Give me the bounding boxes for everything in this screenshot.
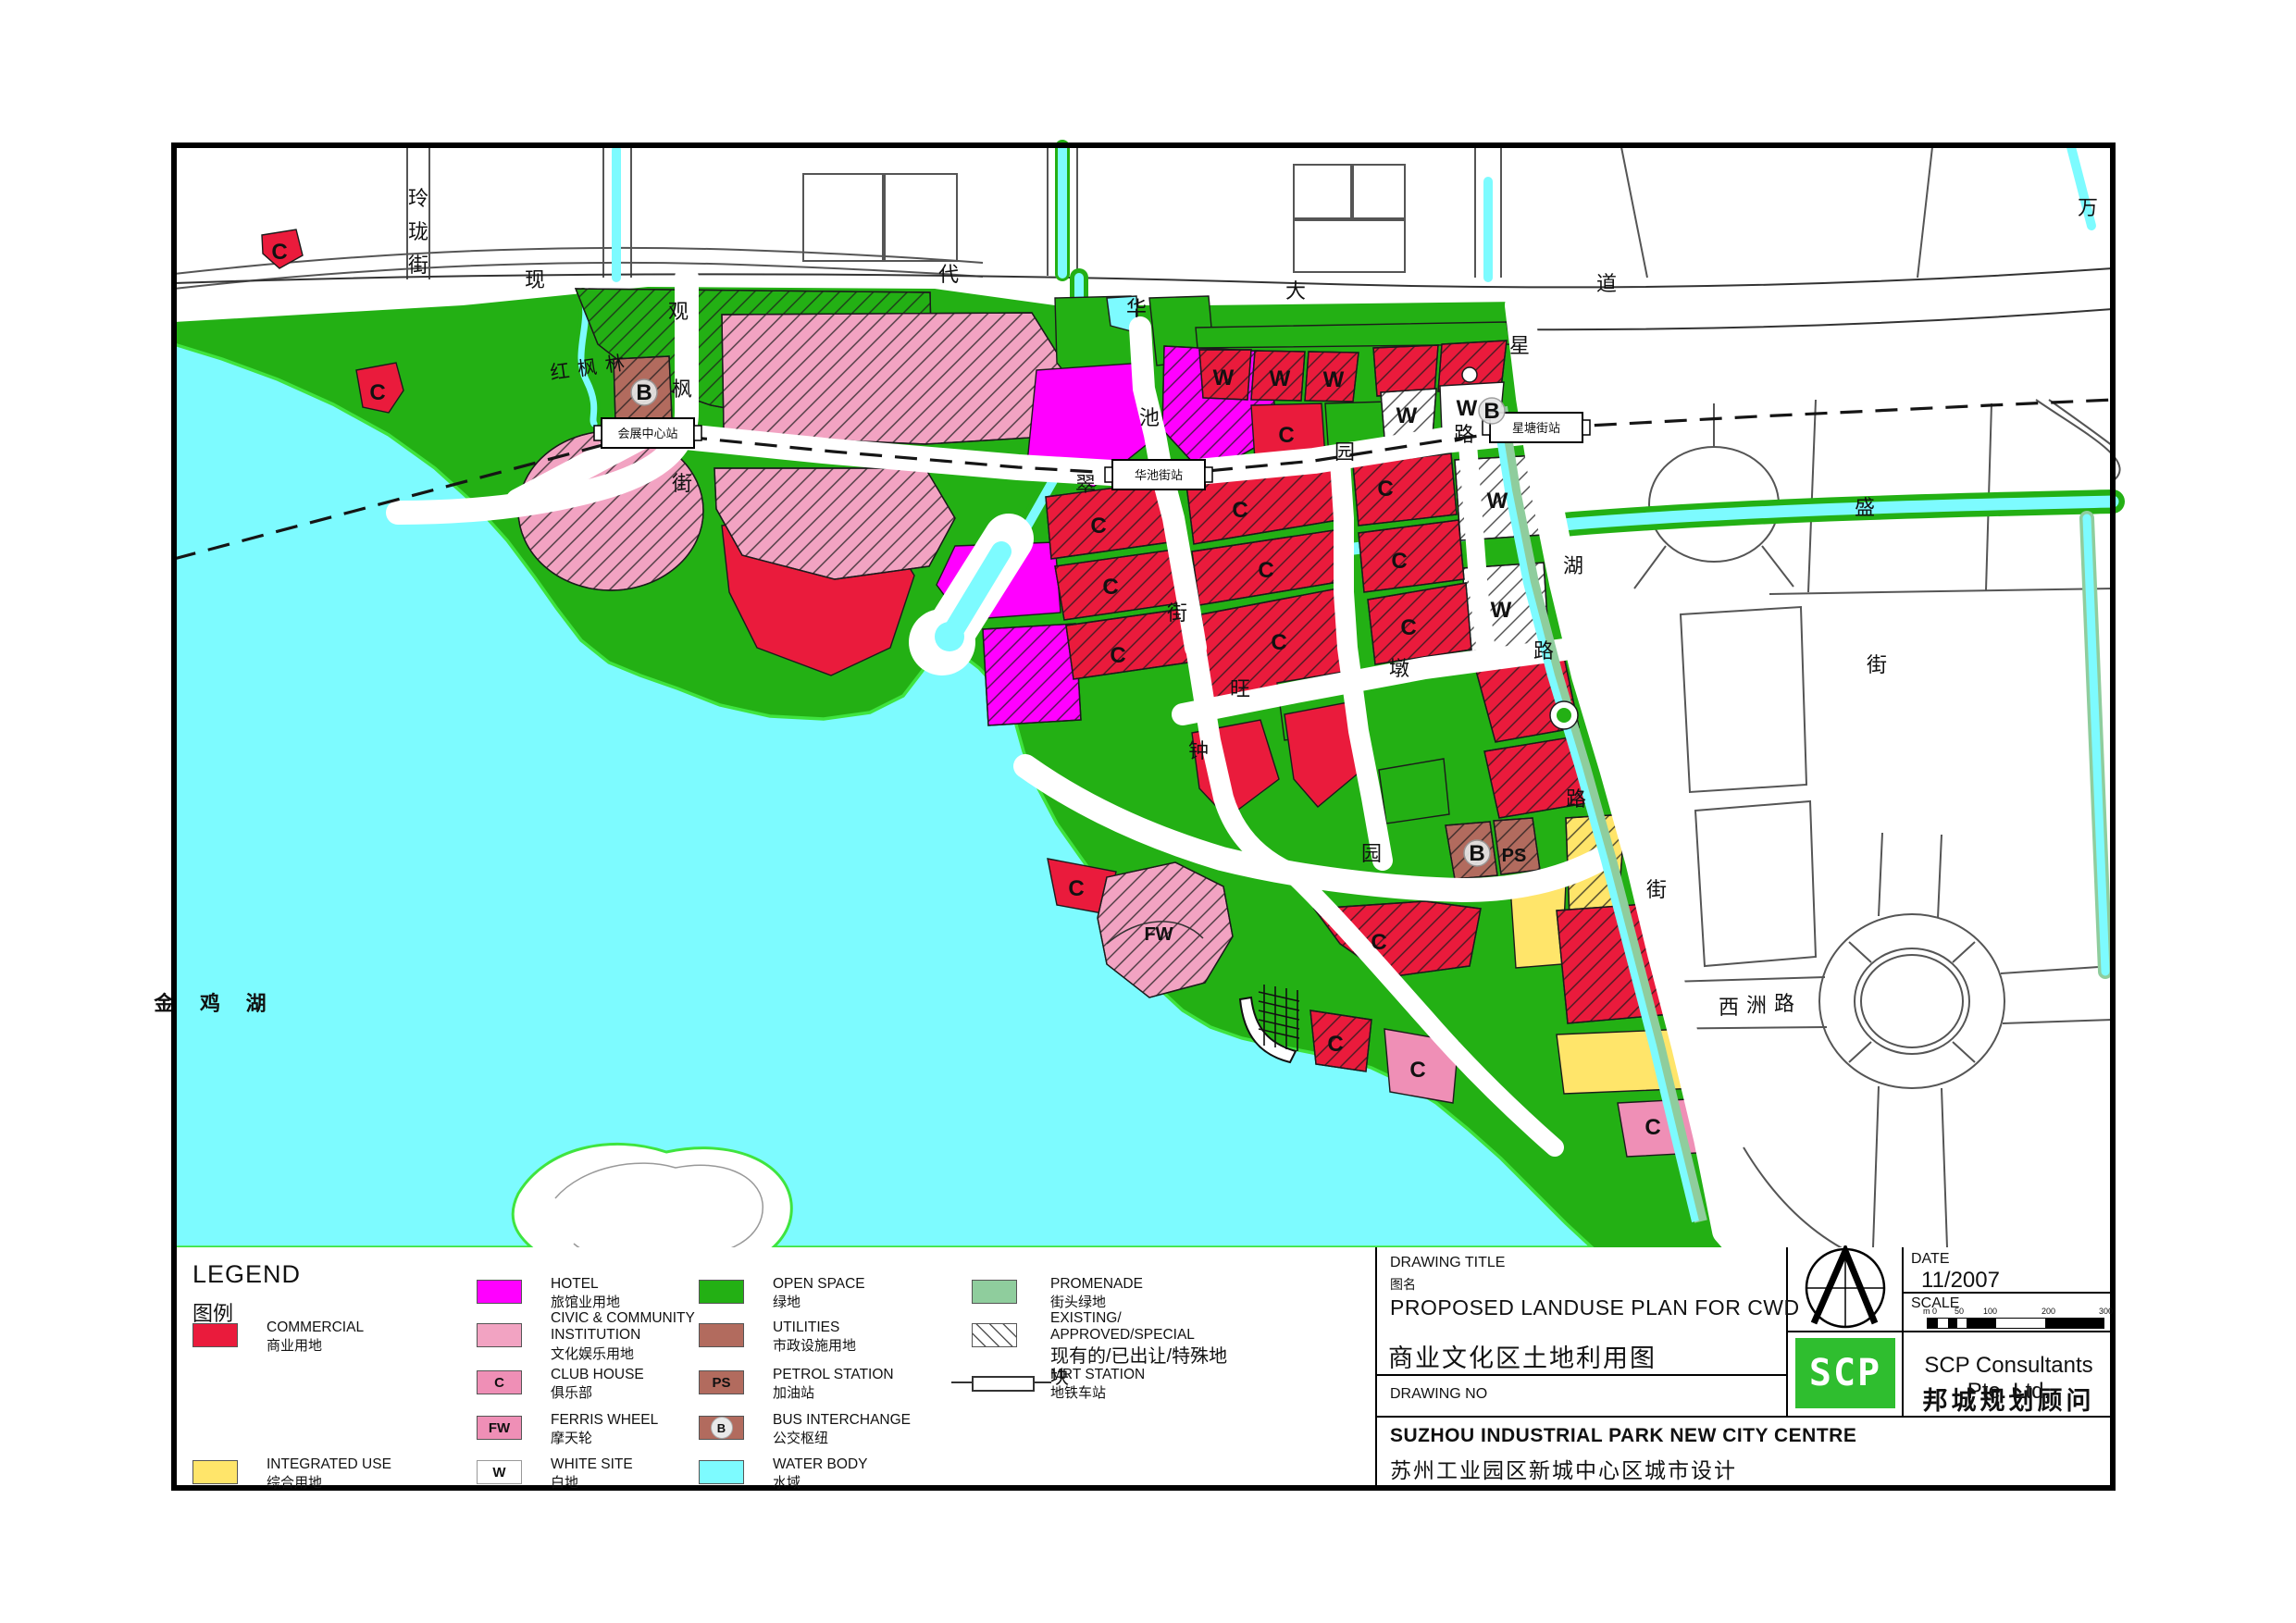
legend-label-petrol-station: PETROL STATION加油站 [773, 1367, 967, 1402]
street-name-label: 玲 [408, 188, 428, 211]
street-name-label: 现 [525, 269, 545, 292]
street-name-label: 街 [1867, 654, 1887, 677]
parcel-letter-c: C [1377, 477, 1393, 502]
legend-label-open-space: OPEN SPACE绿地 [773, 1276, 967, 1311]
legend-label-bus-interchange: BUS INTERCHANGE公交枢纽 [773, 1412, 967, 1447]
roundabout-dot [1557, 708, 1571, 723]
street-name-label: 街 [1167, 602, 1187, 626]
parcel-letter-c: C [1391, 549, 1407, 574]
scale-tick: 50 [1955, 1307, 1964, 1316]
street-name-label: 观 [668, 301, 689, 324]
drawing-no-label: DRAWING NO [1390, 1386, 1487, 1403]
parcel-letter-c: C [271, 240, 287, 265]
company-name-zh: 邦城规划顾问 [1905, 1381, 2113, 1417]
mrt-station-name: 华池街站 [1135, 469, 1183, 483]
parcel-letter-c: C [1232, 498, 1247, 523]
legend-swatch-water-body [699, 1460, 744, 1484]
legend-swatch-promenade [972, 1280, 1017, 1304]
parcel-letter-w: W [1396, 403, 1418, 428]
mrt-station-name: 星塘街站 [1512, 421, 1560, 436]
street-name-label: 墩 [1389, 658, 1409, 681]
parcel-letter-c: C [369, 380, 385, 405]
parcel-letter-c: C [1400, 615, 1416, 640]
parcel-letter-c: C [1409, 1058, 1425, 1083]
legend-swatch-integrated-use [192, 1460, 238, 1484]
scale-tick: 100 [1983, 1307, 1997, 1316]
scale-bar [1927, 1318, 2104, 1329]
parcel-hotel-hatched [983, 624, 1081, 725]
parcel-letter-w: W [1323, 367, 1345, 392]
street-name-label: 池 [1139, 407, 1160, 430]
street-name-label: 万 [2078, 197, 2098, 220]
legend-swatch-petrol-station: PS [699, 1370, 744, 1394]
street-name-label: 路 [1454, 424, 1474, 447]
parcel-letter-w: W [1213, 365, 1235, 390]
street-name-label: 街 [1646, 879, 1667, 902]
parcel-letter-b: B [636, 380, 652, 405]
scp-logo: SCP [1795, 1338, 1895, 1408]
parcel-open [1379, 759, 1449, 824]
street-name-label: 街 [672, 473, 692, 496]
legend-label-commercial: COMMERCIAL商业用地 [267, 1319, 461, 1355]
legend-swatch-civic-community-institution [477, 1323, 522, 1347]
legend-swatch-club-house: C [477, 1370, 522, 1394]
date-value: 11/2007 [1921, 1268, 2000, 1294]
street-name-label: 洲 [1746, 995, 1767, 1018]
street-name-label: 路 [1774, 993, 1794, 1016]
street-name-label: 园 [1361, 843, 1382, 866]
legend-swatch-utilities [699, 1323, 744, 1347]
street-name-label: 珑 [408, 221, 428, 244]
roundabout-dot [1462, 367, 1477, 382]
legend-swatch-white-site: W [477, 1460, 522, 1484]
parcel-letter-c: C [1371, 930, 1386, 955]
north-compass-icon [1792, 1245, 1901, 1331]
legend-label-promenade: PROMENADE街头绿地 [1050, 1276, 1245, 1311]
street-name-label: 华 [1126, 298, 1147, 321]
street-name-label: 湖 [1563, 555, 1583, 578]
parcel-letter-c: C [1327, 1032, 1343, 1057]
street-name-label: 路 [1533, 640, 1554, 663]
scale-tick: 300 [2099, 1307, 2113, 1316]
drawing-title: PROPOSED LANDUSE PLAN FOR CWD [1390, 1295, 1800, 1320]
street-name-label: 代 [938, 264, 959, 287]
parcel-letter-c: C [1102, 575, 1118, 600]
street-name-label: 路 [1566, 788, 1586, 811]
street-name-label: 盛 [1855, 497, 1875, 520]
parcel-letter-w: W [1487, 489, 1508, 514]
parcel-letter-w: W [1491, 598, 1512, 623]
scale-tick: m 0 [1923, 1307, 1937, 1316]
legend-swatch-hotel [477, 1280, 522, 1304]
parcel-letter-w: W [1457, 396, 1478, 421]
street-name-label: 旺 [1230, 678, 1250, 701]
date-label: DATE [1911, 1251, 1949, 1268]
street-name-label: 钟 [1188, 740, 1209, 763]
mrt-station-name: 会展中心站 [617, 427, 677, 441]
street-name-label: 西 [1719, 997, 1739, 1020]
parcel-letter-c: C [1278, 423, 1294, 448]
legend-swatch-bus-interchange: B [699, 1416, 744, 1440]
drawing-title-label-zh: 图名 [1390, 1275, 1416, 1294]
project-name-zh: 苏州工业园区新城中心区城市设计 [1390, 1453, 1737, 1484]
drawing-title-label: DRAWING TITLE [1390, 1255, 1505, 1271]
parcel-letter-w: W [1270, 366, 1291, 391]
street-name-label: 大 [1285, 280, 1306, 304]
parcel-letter-b: B [1483, 399, 1499, 424]
landuse-plan-sheet: 会展中心站华池街站星塘街站 CCCCCCCCCCCCCCCCCWWWWWWWFW… [0, 0, 2296, 1623]
legend-title: LEGEND [192, 1260, 301, 1289]
project-name-en: SUZHOU INDUSTRIAL PARK NEW CITY CENTRE [1390, 1425, 1856, 1447]
parcel-letter-c: C [1258, 558, 1273, 583]
legend-swatch-ferris-wheel: FW [477, 1416, 522, 1440]
legend-label-integrated-use: INTEGRATED USE综合用地 [267, 1456, 461, 1492]
parcel-letter-b: B [1469, 841, 1484, 866]
legend-swatch-mrt-station [964, 1376, 1038, 1389]
parcel-letter-c: C [1271, 630, 1286, 655]
street-name-label: 星 [1509, 335, 1530, 358]
street-name-label: 园 [1334, 441, 1355, 465]
parcel-letter-c: C [1644, 1115, 1660, 1140]
parcel-letter-ps: PS [1502, 846, 1527, 866]
legend-swatch-open-space [699, 1280, 744, 1304]
street-name-label: 枫 [672, 378, 692, 402]
scale-tick: 200 [2042, 1307, 2055, 1316]
drawing-title-zh: 商业文化区土地利用图 [1388, 1338, 1657, 1374]
legend-swatch-commercial [192, 1323, 238, 1347]
parcel-letter-c: C [1110, 643, 1125, 668]
parcel-letter-c: C [1068, 876, 1084, 901]
legend-label-water-body: WATER BODY水域 [773, 1456, 967, 1492]
street-name-label: 街 [408, 254, 428, 278]
parcel-letter-fw: FW [1144, 924, 1173, 945]
legend-label-mrt-station: MRT STATION地铁车站 [1050, 1367, 1245, 1402]
legend-label-utilities: UTILITIES市政设施用地 [773, 1319, 967, 1355]
parcel-letter-c: C [1090, 514, 1106, 539]
street-name-label: 翠 [1075, 474, 1096, 497]
street-name-label: 道 [1596, 273, 1617, 296]
legend-swatch-existing-approved-special [972, 1323, 1017, 1347]
